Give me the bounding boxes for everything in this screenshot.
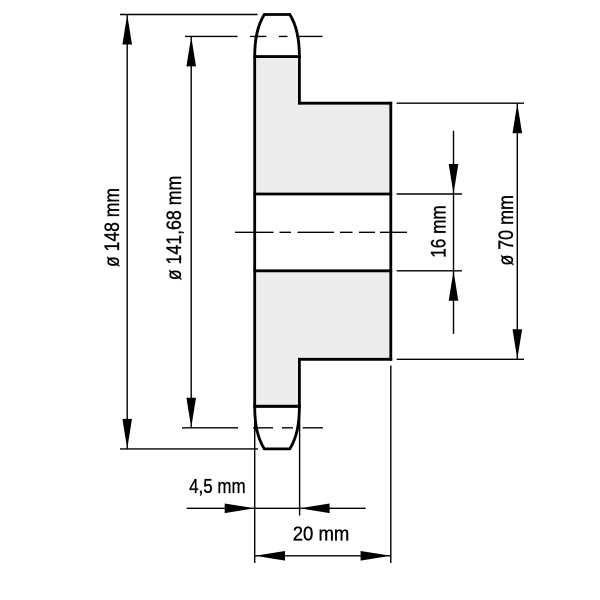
svg-text:ø 141,68 mm: ø 141,68 mm [163,176,186,281]
svg-text:4,5 mm: 4,5 mm [189,476,246,498]
svg-text:16 mm: 16 mm [428,205,451,258]
svg-text:ø 148 mm: ø 148 mm [101,188,124,267]
svg-text:ø 70 mm: ø 70 mm [495,195,518,266]
svg-text:20 mm: 20 mm [293,524,350,546]
